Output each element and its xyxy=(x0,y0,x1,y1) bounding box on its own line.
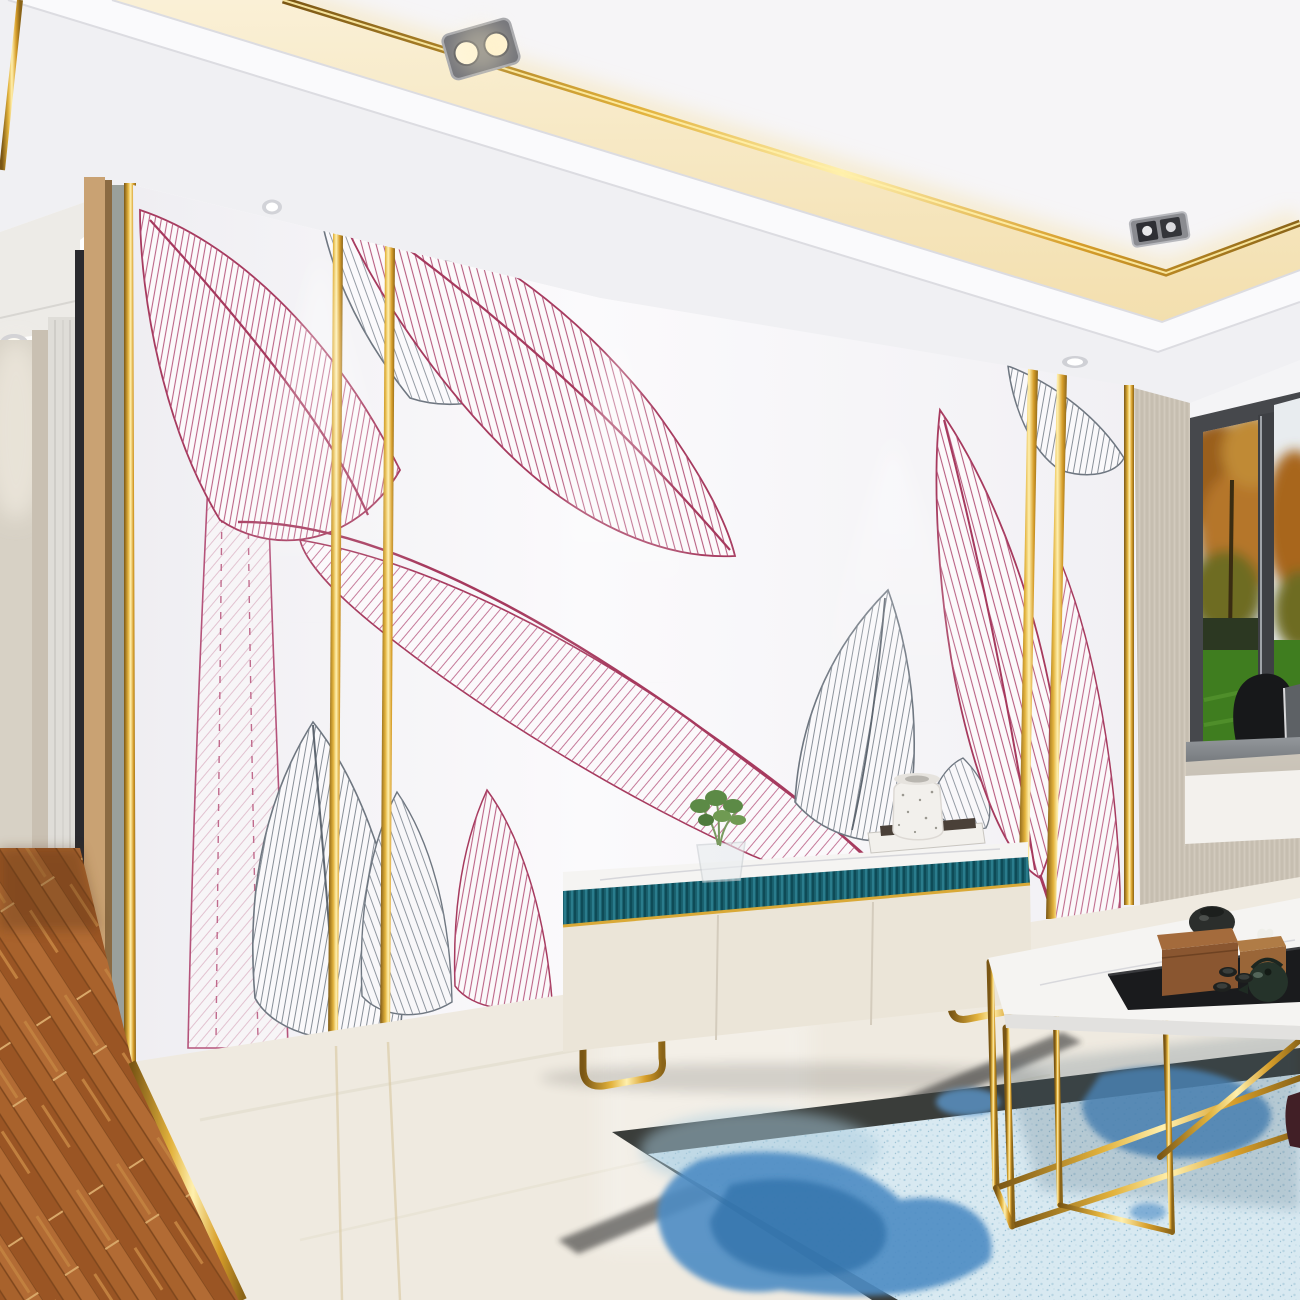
beige-column xyxy=(1134,388,1190,907)
wood-panel-edge xyxy=(105,180,112,1065)
rug-blob-small xyxy=(1130,1203,1166,1221)
downlight xyxy=(266,203,278,212)
gray-panel xyxy=(112,185,124,1065)
teapot-lid-knob xyxy=(1265,969,1272,976)
downlight xyxy=(1067,358,1083,365)
jar-opening xyxy=(905,776,929,783)
hedge xyxy=(1200,618,1262,652)
teapot-highlight xyxy=(1253,972,1263,978)
jar-highlight xyxy=(1199,915,1209,921)
tree-trunk xyxy=(1230,480,1232,640)
living-room-render xyxy=(0,0,1300,1300)
glass-vase xyxy=(697,842,745,882)
under-window-panel xyxy=(1185,770,1300,846)
jar-body xyxy=(893,780,943,840)
speckled-jar xyxy=(893,773,943,840)
gold-wall-right-edge xyxy=(1124,385,1134,905)
window-wall xyxy=(1134,360,1300,908)
scene-canvas xyxy=(0,0,1300,1300)
